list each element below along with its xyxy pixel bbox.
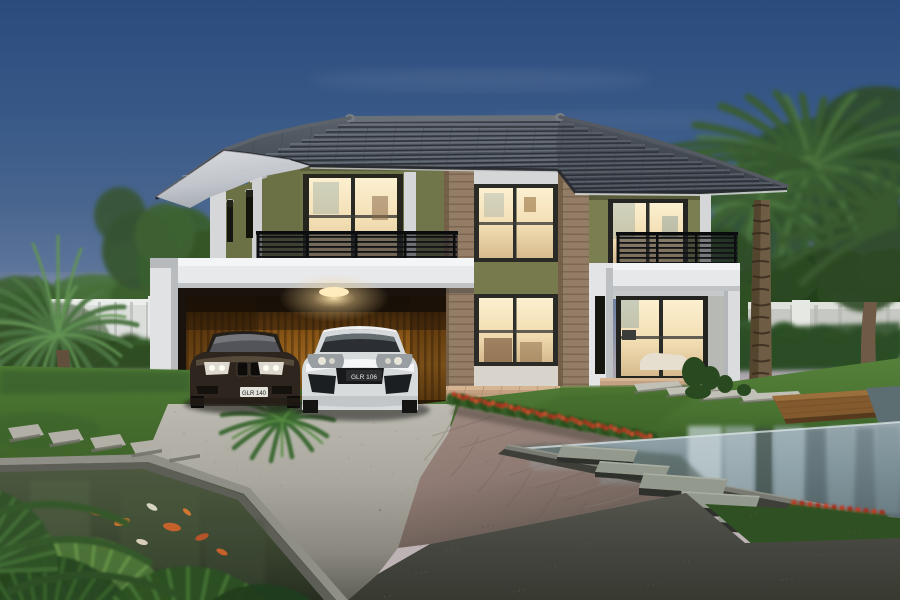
svg-text:GLR 140: GLR 140 <box>242 391 267 397</box>
svg-text:GLR 106: GLR 106 <box>351 374 377 381</box>
